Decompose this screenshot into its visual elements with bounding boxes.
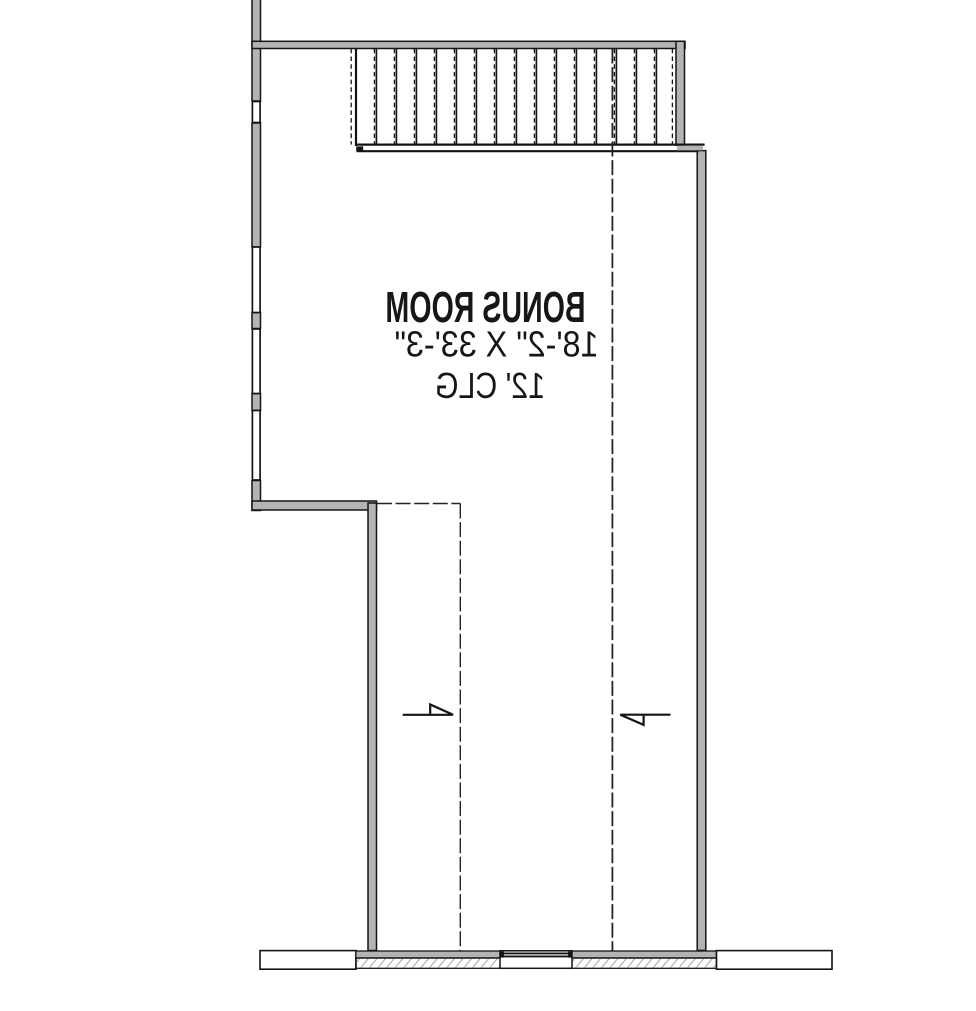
svg-text:18'-2" X 33'-3": 18'-2" X 33'-3" (395, 323, 599, 364)
svg-text:12' CLG: 12' CLG (435, 365, 545, 406)
